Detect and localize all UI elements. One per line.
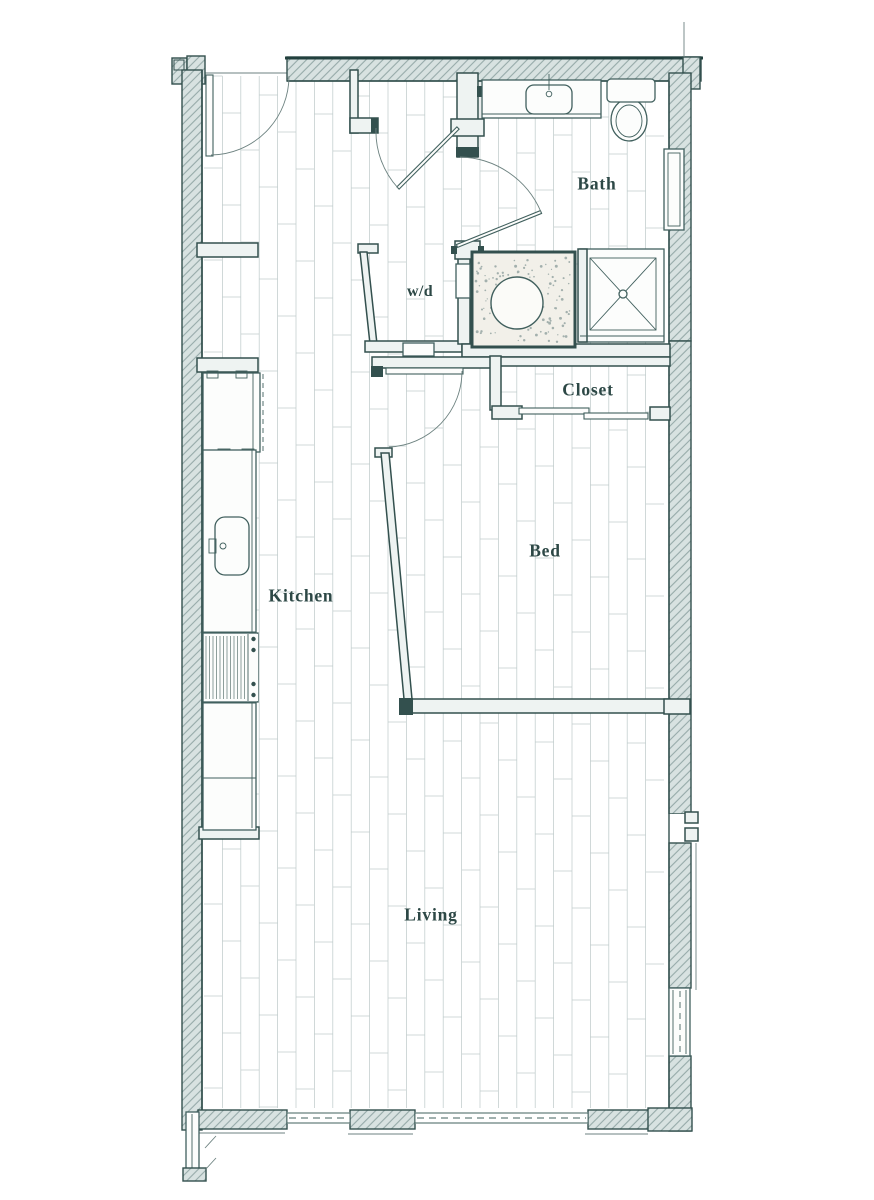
left-wall (182, 70, 202, 1130)
kitchen-stub-wall (197, 358, 258, 372)
room-label-kitchen: Kitchen (269, 586, 334, 607)
bottom-window-left (287, 1112, 350, 1124)
door-jamb (371, 118, 378, 133)
bottom-wall (198, 1110, 287, 1129)
bedroom-left-wall (381, 453, 412, 699)
soaking-tub (472, 252, 575, 347)
bath-window (664, 149, 684, 230)
bath-partition (457, 73, 478, 157)
entry-door-swing (206, 75, 289, 156)
wall-end-block (664, 699, 690, 714)
wall-joint-block (685, 828, 698, 841)
bottom-wall (350, 1110, 415, 1129)
door-jamb (451, 246, 457, 254)
bottom-right-corner (648, 1108, 692, 1131)
toilet (607, 79, 655, 141)
wd-left-wall (360, 252, 377, 344)
kitchen-stub-wall (197, 243, 258, 257)
closet-top-wall (496, 357, 670, 366)
bath-door-swing (456, 157, 541, 247)
side-window (669, 988, 690, 1056)
wall-corner (399, 698, 413, 715)
bedroom-top-wall (372, 357, 494, 368)
vanity-sink (482, 74, 601, 118)
range (203, 633, 258, 702)
top-wall (287, 57, 701, 81)
kitchen-sink (209, 517, 249, 575)
door-jamb (456, 147, 479, 157)
bottom-window-right (415, 1112, 588, 1124)
hall-door-swing (376, 127, 459, 189)
right-wall (669, 843, 691, 988)
room-label-wd: w/d (407, 283, 433, 301)
room-label-living: Living (404, 905, 457, 926)
floor-plan: Bath w/d Closet Bed Kitchen Living (0, 0, 874, 1200)
floor-plan-drawing (0, 0, 874, 1200)
wall-recess (456, 264, 470, 298)
wall-joint-block (685, 812, 698, 823)
door-jamb (371, 366, 383, 377)
room-label-bed: Bed (529, 541, 561, 562)
closet-wall-foot (492, 406, 522, 419)
refrigerator (203, 371, 263, 456)
bottom-wall (588, 1110, 650, 1129)
wd-threshold (403, 343, 434, 356)
closet-left-wall (490, 356, 501, 410)
shower (578, 249, 664, 342)
room-label-bath: Bath (577, 174, 616, 195)
closet-sliding-doors (519, 408, 648, 419)
room-label-closet: Closet (562, 380, 613, 401)
right-wall (669, 341, 691, 814)
closet-right-wall (650, 407, 670, 420)
bedroom-bottom-wall (404, 699, 670, 713)
